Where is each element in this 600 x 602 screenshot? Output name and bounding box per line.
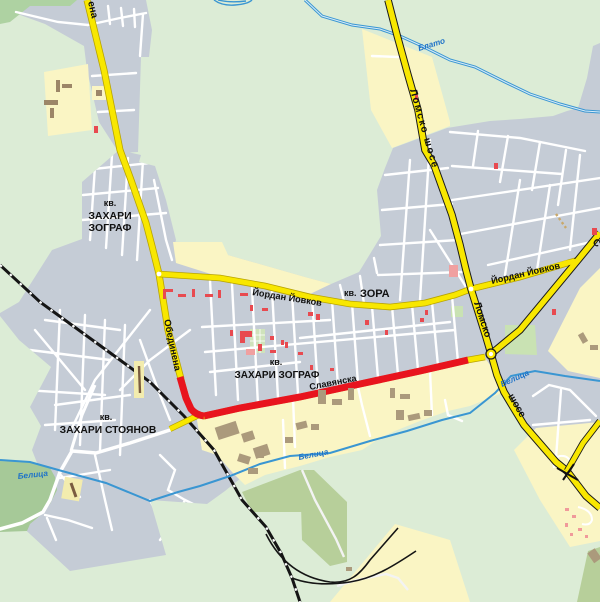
svg-text:кв.: кв.	[104, 198, 117, 208]
svg-text:кв.: кв.	[344, 288, 357, 298]
svg-text:ЗАХАРИ ЗОГРАФ: ЗАХАРИ ЗОГРАФ	[235, 370, 320, 381]
svg-text:ЗОРА: ЗОРА	[360, 288, 390, 300]
svg-text:кв.: кв.	[270, 357, 283, 367]
svg-text:ЗОГРАФ: ЗОГРАФ	[89, 222, 132, 234]
svg-text:ЗАХАРИ СТОЯНОВ: ЗАХАРИ СТОЯНОВ	[60, 425, 157, 436]
svg-text:ЗАХАРИ: ЗАХАРИ	[88, 210, 131, 222]
svg-text:кв.: кв.	[100, 412, 113, 422]
